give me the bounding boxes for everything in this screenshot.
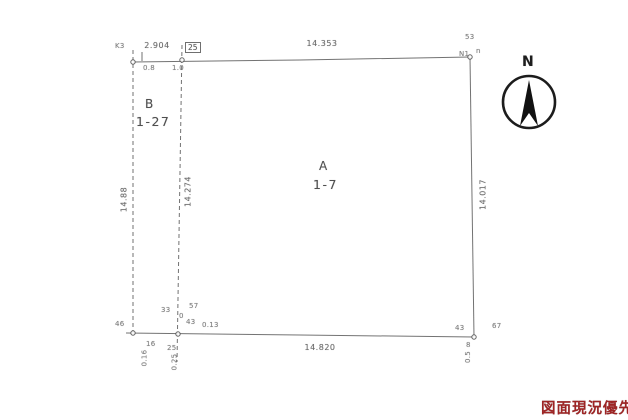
parcel-a-letter: A [319,159,328,173]
annotation-text: 53 [465,33,475,41]
annotation-text: 0.5 [464,351,472,363]
survey-point-marker [180,58,184,62]
annotation-text: 8 [466,341,471,349]
dim-right-height: 14.017 [479,173,488,217]
north-compass-needle [520,80,538,126]
annotation-text: 0.8 [143,64,155,72]
dim-top-width: 14.353 [300,39,344,48]
north-label: N [522,54,534,70]
annotation-text: 46 [115,320,125,328]
annotation-text: N1 [459,50,469,58]
survey-point-marker [176,332,180,336]
survey-drawing-page: N B 1-27 A 1-7 2.904 25 14.353 14.820 14… [0,0,628,420]
annotation-text: 67 [492,322,502,330]
annotation-text: n [476,47,481,55]
drawing-priority-stamp: 図面現況優先 [541,397,628,418]
parcel-b-number: 1-27 [136,114,170,129]
annotation-text: 0.25 [170,354,178,371]
dim-top-b-width: 2.904 [138,41,176,50]
survey-point-marker [472,335,476,339]
parcel-a-number: 1-7 [313,177,338,192]
plot-boundary-right [470,57,474,337]
dim-left-height: 14.88 [120,178,129,222]
annotation-text: 25 [167,344,177,352]
annotation-text: 43 [186,318,196,326]
dim-bottom-width: 14.820 [298,343,342,352]
annotation-text: 0.16 [140,350,148,367]
survey-point-marker [131,331,135,335]
annotation-text: K3 [115,42,125,50]
annotation-text: 0 [179,312,184,320]
annotation-text: 0.13 [202,321,219,329]
annotation-text: 16 [146,340,156,348]
dim-inner-height: 14.274 [184,170,193,214]
dim-top-boxed: 25 [185,42,201,53]
annotation-text: 57 [189,302,199,310]
survey-point-marker [131,60,135,64]
annotation-text: 33 [161,306,171,314]
annotation-text: 1.0 [172,64,184,72]
annotation-text: 43 [455,324,465,332]
parcel-b-letter: B [145,97,154,111]
